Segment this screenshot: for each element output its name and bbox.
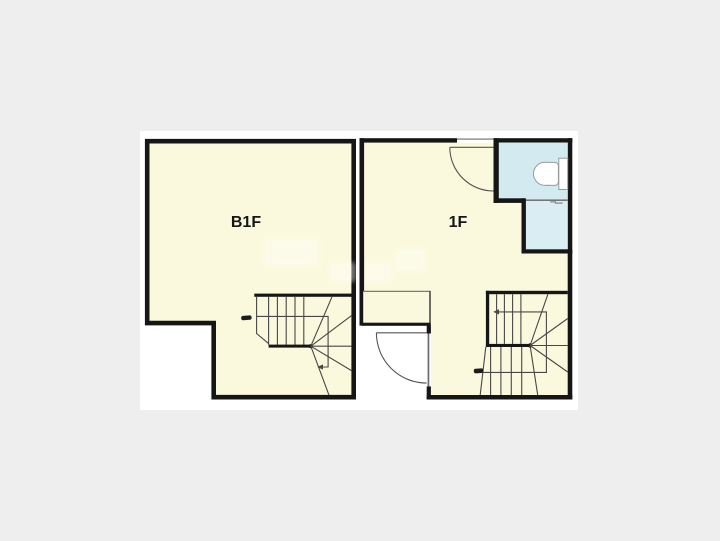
svg-text:B1F: B1F (231, 214, 261, 231)
svg-text:1F: 1F (449, 214, 468, 231)
